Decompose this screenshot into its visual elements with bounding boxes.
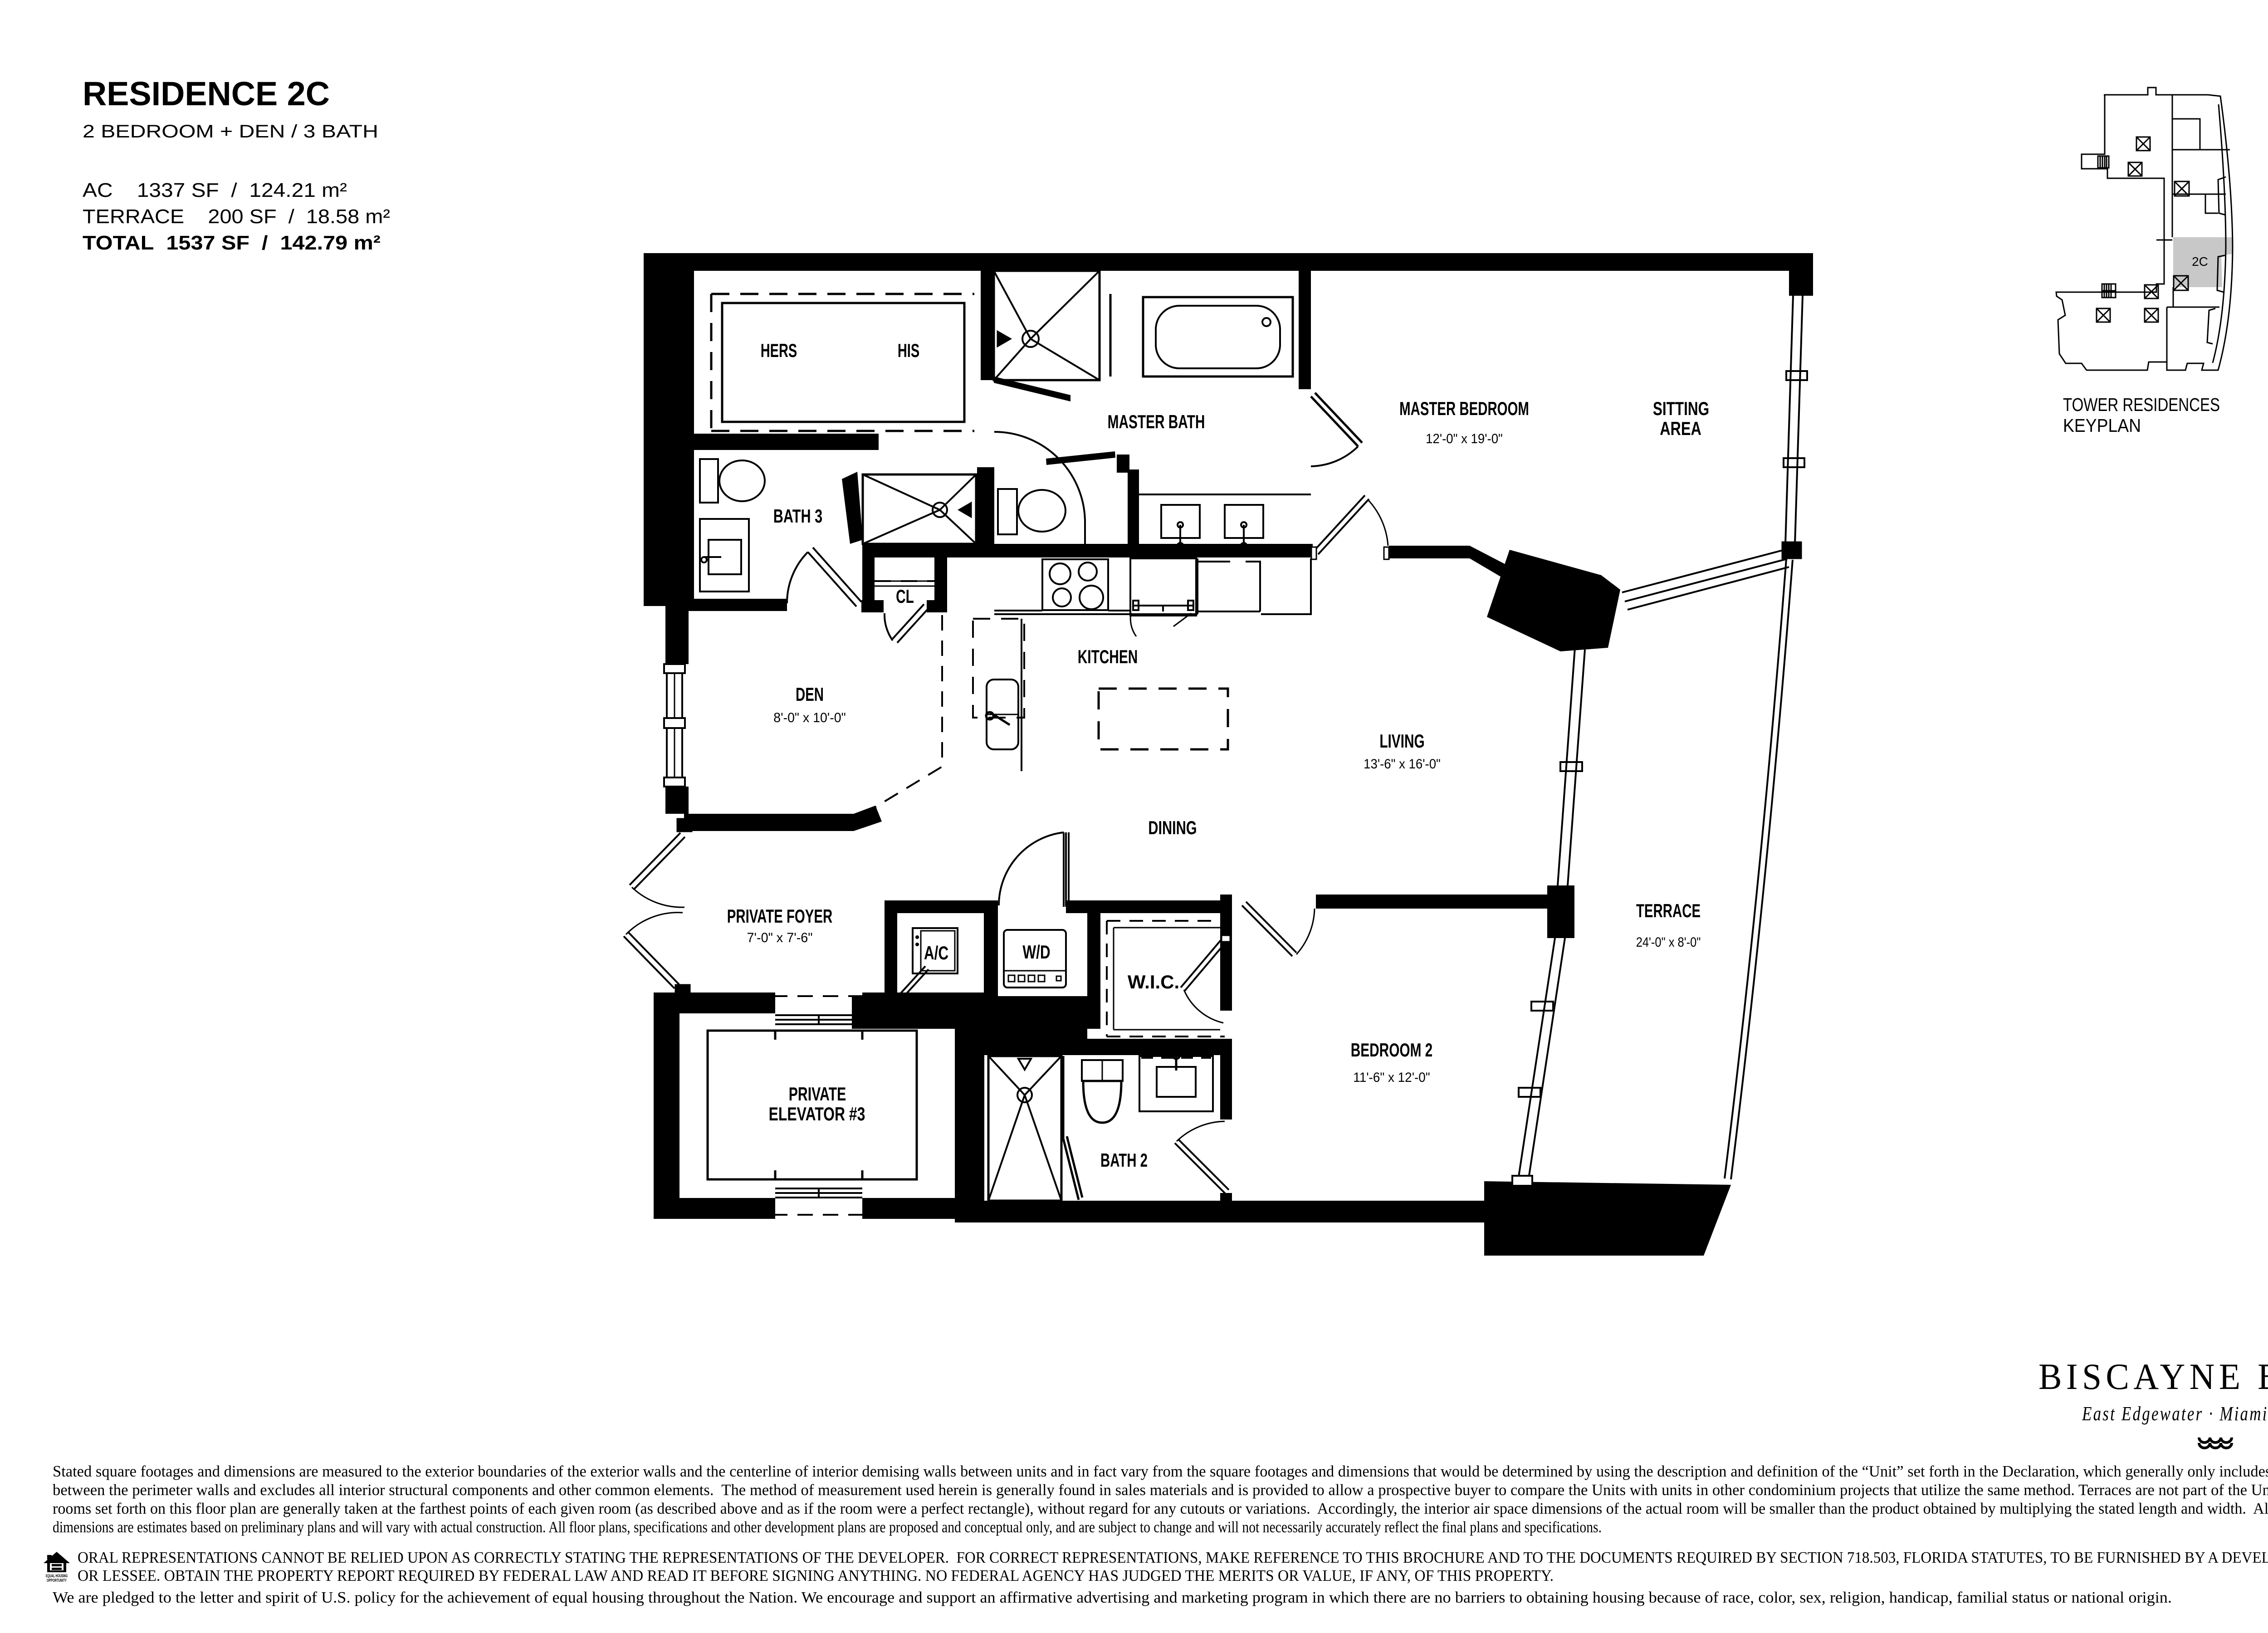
svg-text:KITCHEN: KITCHEN	[1078, 646, 1138, 667]
svg-text:CL: CL	[896, 586, 914, 607]
svg-text:between the perimeter walls an: between the perimeter walls and excludes…	[53, 1481, 2268, 1499]
svg-text:2 BEDROOM + DEN / 3 BATH: 2 BEDROOM + DEN / 3 BATH	[83, 122, 378, 142]
svg-text:MASTER BEDROOM: MASTER BEDROOM	[1399, 398, 1529, 420]
svg-text:HIS: HIS	[898, 340, 919, 362]
svg-text:PRIVATE FOYER: PRIVATE FOYER	[727, 905, 833, 927]
svg-text:SITTING: SITTING	[1653, 398, 1709, 420]
svg-text:TOTAL 1537 SF / 142.79 m²: TOTAL 1537 SF / 142.79 m²	[83, 232, 381, 254]
svg-text:W/D: W/D	[1022, 941, 1050, 963]
svg-text:OPPORTUNITY: OPPORTUNITY	[47, 1578, 67, 1583]
svg-text:11'-6" x 12'-0": 11'-6" x 12'-0"	[1353, 1070, 1430, 1085]
svg-text:24'-0" x 8'-0": 24'-0" x 8'-0"	[1636, 934, 1701, 949]
svg-text:12'-0" x 19'-0": 12'-0" x 19'-0"	[1426, 431, 1503, 446]
svg-text:BISCAYNE BEACH: BISCAYNE BEACH	[2038, 1356, 2268, 1397]
svg-text:ELEVATOR #3: ELEVATOR #3	[769, 1103, 865, 1125]
svg-text:AC 1337 SF / 124.21 m²: AC 1337 SF / 124.21 m²	[83, 179, 347, 201]
svg-text:ORAL REPRESENTATIONS CANNOT BE: ORAL REPRESENTATIONS CANNOT BE RELIED UP…	[78, 1549, 2268, 1566]
svg-text:13'-6" x 16'-0": 13'-6" x 16'-0"	[1364, 757, 1441, 772]
svg-text:KEYPLAN: KEYPLAN	[2063, 415, 2141, 436]
svg-text:TERRACE 200 SF / 18.58 m²: TERRACE 200 SF / 18.58 m²	[83, 205, 390, 228]
svg-text:AREA: AREA	[1660, 418, 1701, 439]
svg-text:We are pledged to the letter a: We are pledged to the letter and spirit …	[53, 1589, 2172, 1606]
svg-text:OR LESSEE. OBTAIN THE PROPERTY: OR LESSEE. OBTAIN THE PROPERTY REPORT RE…	[78, 1567, 1554, 1584]
svg-text:LIVING: LIVING	[1379, 730, 1424, 752]
svg-text:DEN: DEN	[796, 684, 824, 705]
svg-text:8'-0" x 10'-0": 8'-0" x 10'-0"	[773, 710, 846, 725]
svg-text:BEDROOM 2: BEDROOM 2	[1351, 1039, 1433, 1061]
svg-text:TERRACE: TERRACE	[1636, 900, 1701, 922]
svg-text:rooms set forth on this floor: rooms set forth on this floor plan are g…	[53, 1500, 2268, 1517]
svg-text:East Edgewater · Miami Residen: East Edgewater · Miami Residences	[2082, 1403, 2268, 1425]
svg-text:EQUAL HOUSING: EQUAL HOUSING	[46, 1574, 68, 1578]
svg-text:BATH 2: BATH 2	[1100, 1149, 1148, 1171]
svg-text:TOWER RESIDENCES: TOWER RESIDENCES	[2063, 394, 2220, 415]
svg-text:W.I.C.: W.I.C.	[1128, 971, 1179, 993]
svg-text:Stated square footages and dim: Stated square footages and dimensions ar…	[53, 1462, 2268, 1480]
svg-text:RESIDENCE 2C: RESIDENCE 2C	[83, 75, 330, 112]
svg-text:A/C: A/C	[924, 942, 948, 964]
svg-text:BATH 3: BATH 3	[773, 505, 822, 527]
svg-text:PRIVATE: PRIVATE	[789, 1083, 846, 1105]
svg-text:dimensions are estimates based: dimensions are estimates based on prelim…	[53, 1518, 1602, 1536]
svg-text:HERS: HERS	[761, 340, 797, 362]
svg-text:MASTER BATH: MASTER BATH	[1108, 411, 1205, 432]
svg-text:2C: 2C	[2192, 254, 2208, 269]
svg-text:DINING: DINING	[1148, 817, 1197, 838]
svg-text:7'-0" x 7'-6": 7'-0" x 7'-6"	[747, 930, 812, 945]
